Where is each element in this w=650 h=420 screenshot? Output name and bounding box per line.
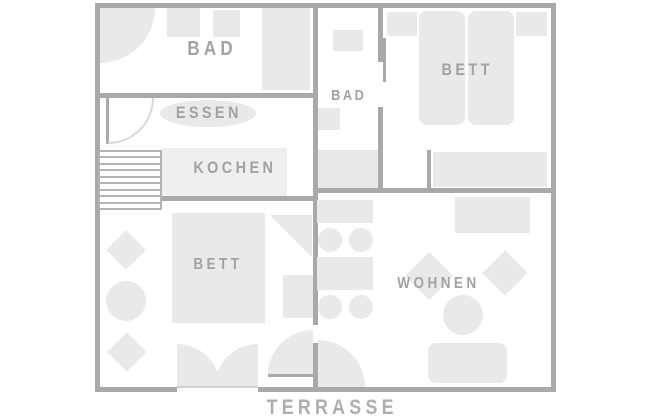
room-label-wohnen: WOHNEN — [382, 272, 494, 296]
outer-wall-bottom-left — [95, 387, 177, 392]
sink-icon — [333, 30, 363, 51]
room-label-bett-lower-left: BETT — [178, 253, 258, 277]
sideboard-icon — [317, 200, 373, 223]
wall-right-horizontal — [313, 188, 556, 193]
door-swing-icon — [177, 344, 220, 387]
room-label-bett-upper-right: BETT — [427, 58, 507, 82]
wall-bad-bett-lower — [378, 107, 383, 188]
table-icon — [317, 257, 373, 290]
bath-cabinet-icon — [167, 8, 200, 37]
floor-plan: BAD ESSEN KOCHEN BAD BETT BETT — [0, 0, 650, 420]
shower-icon — [318, 150, 378, 188]
door-leaf-icon — [268, 374, 313, 377]
sink-icon — [213, 10, 240, 37]
door-swing-icon — [318, 340, 365, 387]
decor-circle-icon — [106, 281, 146, 321]
outer-wall-top — [95, 3, 556, 8]
chair-icon — [349, 295, 373, 319]
outer-wall-right — [551, 3, 556, 392]
nightstand-icon — [387, 12, 417, 36]
cabinet-icon — [455, 197, 530, 233]
bathtub-icon — [262, 8, 310, 90]
toilet-icon — [318, 108, 340, 130]
door-swing-icon — [268, 330, 313, 375]
decor-circle-icon — [443, 295, 483, 335]
door-swing-icon — [100, 8, 155, 63]
nightstand-icon — [283, 275, 313, 318]
decor-diamond-icon — [106, 230, 146, 270]
wardrobe-icon — [433, 152, 547, 187]
door-leaf-icon — [383, 38, 386, 82]
door-threshold — [177, 386, 258, 388]
staircase-icon — [98, 150, 162, 210]
chair-icon — [349, 228, 373, 252]
room-label-bad-upper-left: BAD — [170, 36, 255, 62]
chair-icon — [318, 228, 342, 252]
decor-diamond-icon — [107, 332, 147, 372]
room-label-kochen: KOCHEN — [175, 156, 295, 180]
outer-wall-bottom-right — [258, 387, 556, 392]
door-arc-icon — [108, 98, 154, 144]
sofa-icon — [428, 343, 507, 383]
wall-stub-wardrobe — [427, 150, 431, 190]
nightstand-icon — [516, 12, 547, 36]
room-label-essen: ESSEN — [160, 101, 258, 125]
room-label-bad-middle: BAD — [322, 84, 376, 106]
door-swing-icon — [215, 344, 258, 387]
open-door-corner-icon — [270, 215, 312, 257]
terrace-label: TERRASSE — [245, 396, 420, 420]
chair-icon — [318, 295, 342, 319]
wall-kochen-bett — [160, 196, 318, 201]
